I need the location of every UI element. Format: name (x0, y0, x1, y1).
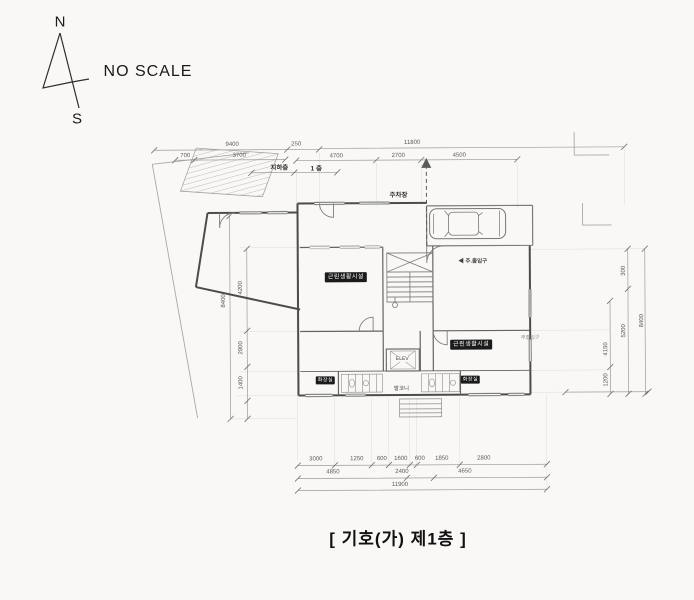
grid-lines (229, 149, 646, 492)
toilet-right-nameplate: 화장실 (461, 376, 480, 384)
floor-plan: 지하층 1 층 주차장 ◀ 주.출입구 부출입구 발코니 ELEV 근린생활시설… (0, 0, 694, 600)
balcony-label: 발코니 (394, 384, 409, 392)
entrance-steps (400, 399, 442, 417)
car-icon (430, 208, 506, 238)
dim-bottom-600b: 600 (415, 456, 425, 462)
parking-label: 주차장 (389, 189, 407, 199)
dim-top-3700: 3700 (233, 153, 246, 159)
elevator-label: ELEV (395, 356, 410, 362)
dim-bottom-11900: 11900 (392, 482, 408, 488)
main-entrance-label: ◀ 주.출입구 (458, 257, 487, 265)
dim-top-250: 250 (291, 142, 301, 148)
scanned-floorplan-page: N S NO SCALE (0, 0, 694, 600)
toilet-left-nameplate: 화장실 (316, 376, 335, 384)
first-floor-tag: 1 층 (311, 162, 322, 172)
dim-right-300: 300 (621, 266, 627, 276)
dim-right-4150: 4150 (603, 342, 609, 355)
window-frames (239, 201, 531, 397)
windows (239, 202, 530, 396)
dim-right-1200: 1200 (603, 373, 609, 386)
dim-bottom-4850: 4850 (326, 469, 339, 475)
dim-top-9400: 9400 (225, 142, 238, 148)
dim-top-4500: 4500 (453, 153, 466, 159)
building-walls (195, 202, 530, 396)
dim-top-4700: 4700 (330, 153, 343, 159)
basement-tag: 지하층 (270, 162, 288, 172)
dim-bottom-4650: 4650 (458, 469, 471, 475)
dim-top-700: 700 (180, 153, 190, 159)
room-left-nameplate: 근린생활시설 (325, 272, 367, 282)
dim-bottom-1850: 1850 (435, 456, 448, 462)
dim-bottom-1250: 1250 (350, 456, 363, 462)
drawing-caption: [ 기호(가) 제1층 ] (329, 525, 466, 550)
dim-bottom-1600: 1600 (394, 456, 407, 462)
dim-top-2700: 2700 (392, 153, 405, 159)
dim-bottom-2800: 2800 (477, 456, 490, 462)
dim-right-8400: 8400 (639, 314, 645, 327)
dim-top-11800: 11800 (404, 140, 420, 146)
dim-right-5200: 5200 (621, 324, 627, 337)
dim-bottom-600a: 600 (377, 456, 387, 462)
dim-left-1400: 1400 (238, 376, 244, 389)
dim-left-4200: 4200 (238, 281, 244, 294)
floorplan-drawing (0, 0, 694, 600)
sub-entrance-label: 부출입구 (521, 334, 539, 341)
dim-bottom-2400: 2400 (395, 469, 408, 475)
interior-walls (300, 245, 531, 395)
room-right-nameplate: 근린생활시설 (450, 340, 492, 350)
stairs (387, 253, 433, 308)
dim-left-2800: 2800 (238, 341, 244, 354)
parking-bay (427, 205, 533, 246)
dim-bottom-3000: 3000 (309, 456, 322, 462)
dim-left-8400: 8400 (221, 294, 227, 307)
